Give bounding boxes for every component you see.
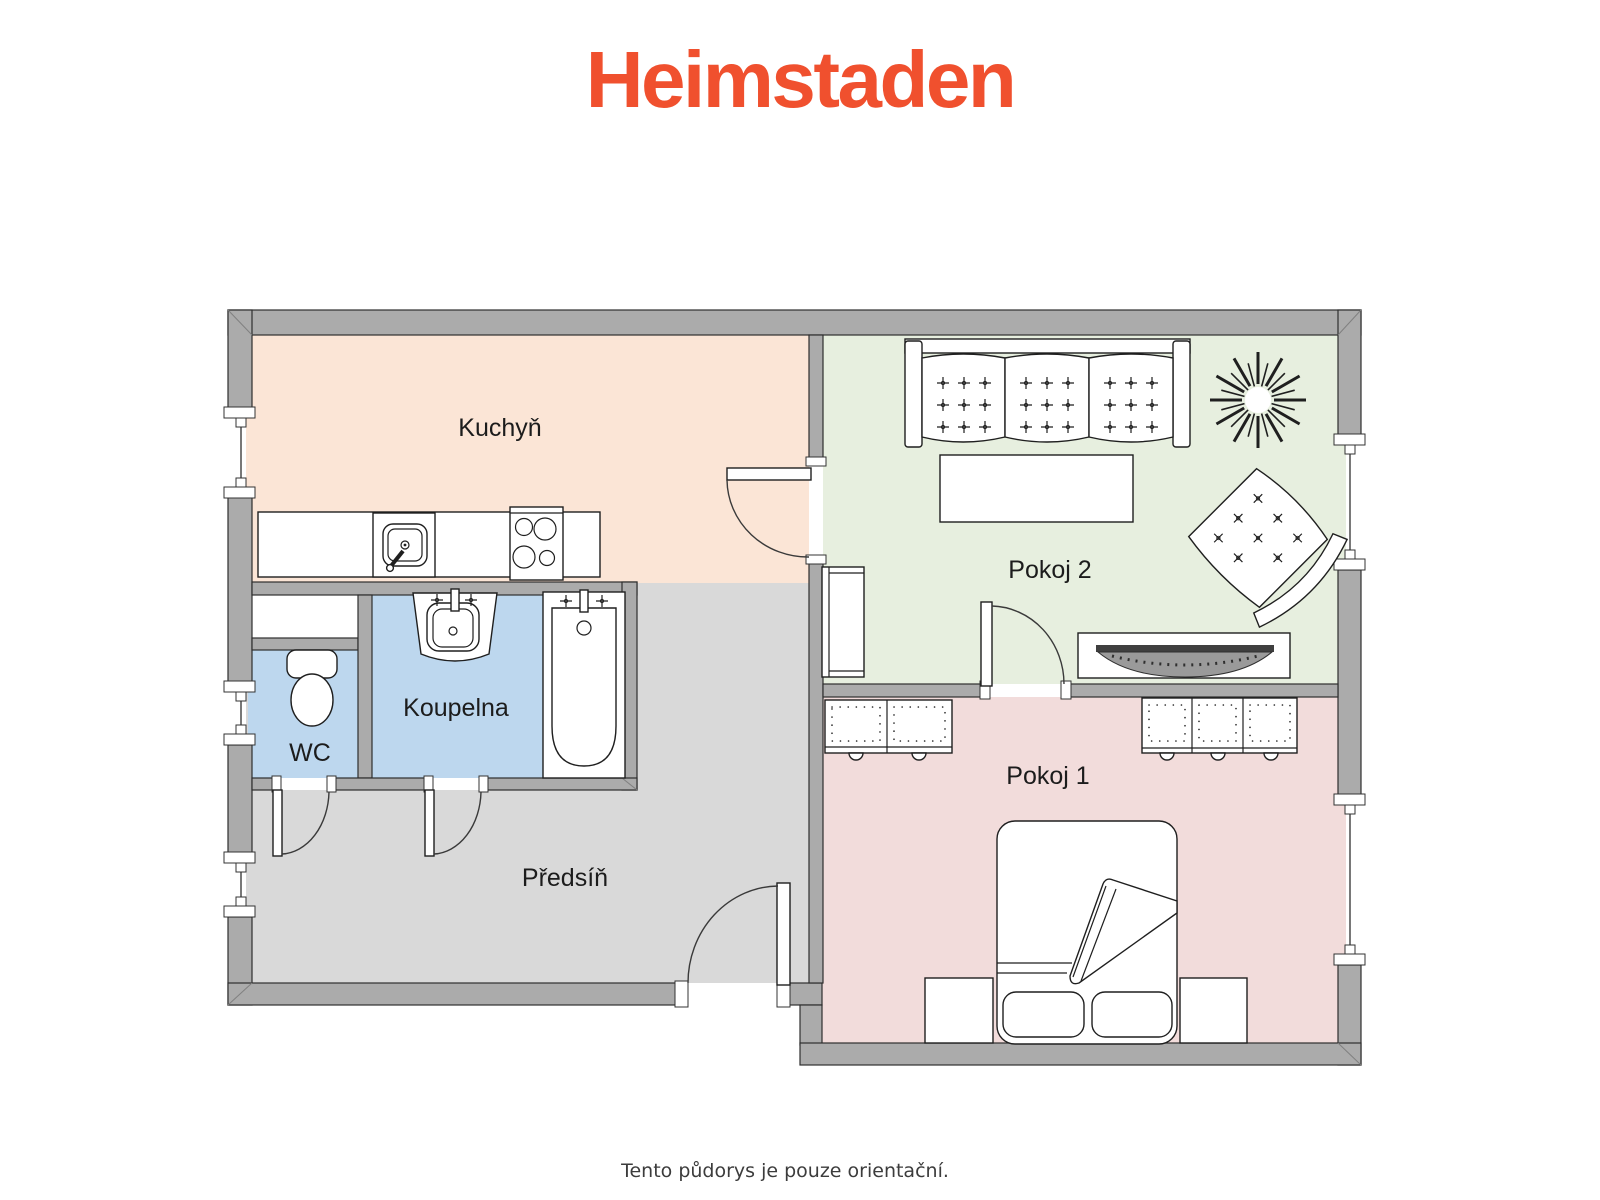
washbasin [413, 589, 497, 661]
bathtub [543, 590, 625, 778]
floor-plan: Kuchyň Pokoj 2 Koupelna WC Předsíň Pokoj… [0, 0, 1600, 1200]
pillow [1003, 992, 1084, 1037]
kitchen-sink [373, 513, 435, 577]
stove [510, 507, 563, 580]
sofa [905, 339, 1190, 447]
page: Heimstaden [0, 0, 1600, 1200]
label-kuchyn: Kuchyň [458, 414, 541, 442]
label-predsin: Předsíň [522, 864, 608, 892]
wardrobe-3-door [1142, 698, 1297, 760]
coffee-table [940, 455, 1133, 522]
bed [997, 821, 1177, 1044]
pillow [1092, 992, 1172, 1037]
label-pokoj1: Pokoj 1 [1006, 762, 1089, 790]
wardrobe-2-door [825, 700, 952, 760]
nightstand [1180, 978, 1247, 1043]
utility-niche [252, 595, 358, 638]
label-pokoj2: Pokoj 2 [1008, 556, 1091, 584]
label-wc: WC [289, 739, 331, 767]
toilet [287, 650, 337, 726]
shelf-unit [822, 567, 864, 677]
label-koupelna: Koupelna [403, 694, 509, 722]
nightstand [925, 978, 993, 1043]
disclaimer-text: Tento půdorys je pouze orientační. [0, 1160, 1570, 1182]
